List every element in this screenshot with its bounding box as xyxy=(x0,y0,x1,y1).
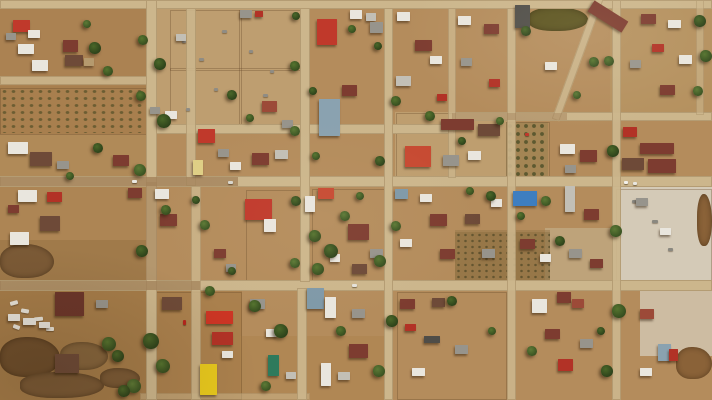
building-roof-maroon xyxy=(430,214,447,226)
building-roof-white xyxy=(264,219,276,232)
building-roof-maroon xyxy=(557,292,571,303)
debris xyxy=(652,220,658,223)
building-roof-white xyxy=(39,322,50,328)
building-roof-redbrown xyxy=(640,309,654,319)
vehicle xyxy=(132,180,137,183)
building-roof-white xyxy=(660,228,671,235)
tree xyxy=(290,258,300,268)
tree xyxy=(249,300,261,312)
vehicle xyxy=(525,133,529,136)
tree xyxy=(227,90,237,100)
building-roof-ltgray xyxy=(338,372,350,380)
building-roof-red2 xyxy=(489,79,500,87)
building-roof-paleyellow xyxy=(193,160,203,175)
building-roof-maroon xyxy=(660,85,675,95)
building-roof-ltgray xyxy=(396,76,411,86)
building-roof-maroon xyxy=(113,155,129,166)
building-roof-red2 xyxy=(669,349,678,361)
tree xyxy=(156,359,170,373)
building-roof-dkbrown xyxy=(30,152,52,166)
tree xyxy=(391,221,401,231)
tree xyxy=(356,192,364,200)
tree xyxy=(486,191,496,201)
building-roof-white xyxy=(10,232,29,245)
building-roof-white xyxy=(18,44,34,54)
building-roof-ltgray xyxy=(275,150,288,159)
tree xyxy=(93,143,103,153)
vehicle xyxy=(624,181,628,184)
building-roof-maroon xyxy=(214,249,226,258)
building-roof-white xyxy=(532,299,547,313)
building-roof-gray xyxy=(630,60,641,68)
scrub-field xyxy=(455,232,550,286)
road-segment xyxy=(448,8,456,178)
building-roof-dkbrown xyxy=(162,297,182,310)
tree xyxy=(118,385,130,397)
debris xyxy=(199,58,204,61)
tree xyxy=(373,365,385,377)
building-roof-maroon xyxy=(252,153,269,165)
debris xyxy=(214,88,218,91)
building-roof-gray xyxy=(240,10,252,18)
building-roof-white xyxy=(350,10,362,19)
tree xyxy=(458,137,466,145)
fence-line xyxy=(0,88,149,135)
building-roof-dkbrown xyxy=(65,55,83,66)
building-roof-white xyxy=(325,297,336,318)
building-roof-white xyxy=(540,254,551,262)
building-roof-white xyxy=(155,189,169,199)
building-roof-ltgray xyxy=(176,34,186,41)
building-roof-white xyxy=(305,196,315,212)
tree xyxy=(274,324,288,338)
tree xyxy=(612,304,626,318)
road-segment xyxy=(384,8,393,400)
fence-line xyxy=(616,189,712,289)
water-patch xyxy=(0,337,60,377)
building-roof-gray xyxy=(96,300,108,308)
building-roof-gray xyxy=(455,345,468,354)
building-roof-white xyxy=(28,30,40,38)
building-roof-white xyxy=(420,194,432,202)
water-patch xyxy=(20,372,104,398)
building-roof-maroon xyxy=(342,85,357,96)
tree xyxy=(694,15,706,27)
building-roof-white xyxy=(400,239,412,247)
building-roof-white xyxy=(458,16,471,25)
building-roof-dkgray xyxy=(424,336,440,343)
building-roof-gray xyxy=(370,22,383,33)
tree xyxy=(154,58,166,70)
building-roof-maroon xyxy=(484,24,499,34)
tree xyxy=(610,225,622,237)
tree xyxy=(374,255,386,267)
building-roof-dkbrown xyxy=(478,124,500,136)
vehicle xyxy=(183,320,186,325)
building-roof-maroon xyxy=(8,205,19,213)
building-roof-gray xyxy=(461,58,472,66)
tree xyxy=(157,114,171,128)
building-roof-ltgray xyxy=(565,186,575,212)
building-roof-gray xyxy=(565,165,576,173)
tree xyxy=(66,172,74,180)
building-roof-maroon xyxy=(400,299,415,309)
tree xyxy=(112,350,124,362)
building-roof-dkbrown xyxy=(40,216,60,231)
tree xyxy=(604,56,614,66)
building-roof-bluegray2 xyxy=(307,288,324,309)
debris xyxy=(263,94,268,97)
building-roof-white xyxy=(412,368,425,376)
building-roof-maroon xyxy=(545,329,560,339)
tree xyxy=(541,196,551,206)
tree xyxy=(521,26,531,36)
tree xyxy=(693,86,703,96)
building-roof-red2 xyxy=(652,44,664,52)
tree xyxy=(555,236,565,246)
building-roof-gray xyxy=(352,309,365,318)
tree xyxy=(309,87,317,95)
building-roof-redbrown xyxy=(572,299,584,308)
tree xyxy=(340,211,350,221)
building-roof-gray xyxy=(150,107,160,114)
tree xyxy=(136,91,146,101)
building-roof-red2 xyxy=(623,127,637,137)
tree xyxy=(386,315,398,327)
tree xyxy=(425,111,435,121)
building-roof-gray xyxy=(443,155,459,166)
tree xyxy=(517,212,525,220)
building-roof-red2 xyxy=(212,332,233,345)
building-roof-tan xyxy=(84,58,94,66)
building-roof-dkgray xyxy=(515,5,530,28)
building-roof-redorange xyxy=(318,188,334,199)
building-roof-maroon xyxy=(590,259,603,268)
tree xyxy=(228,267,236,275)
tree xyxy=(205,286,215,296)
building-roof-maroon xyxy=(648,159,676,173)
aerial-town-photo xyxy=(0,0,712,400)
road-segment xyxy=(297,288,307,400)
tree xyxy=(290,61,300,71)
water-patch xyxy=(528,7,588,31)
building-roof-white xyxy=(23,318,36,325)
building-roof-dkbrown xyxy=(622,158,644,170)
building-roof-dkbrown xyxy=(55,354,79,373)
building-roof-maroon xyxy=(580,150,597,162)
tree xyxy=(83,20,91,28)
building-roof-dkbrown xyxy=(432,298,445,307)
building-roof-white xyxy=(679,55,692,64)
debris xyxy=(222,30,227,33)
ground-zone xyxy=(640,288,712,356)
tree xyxy=(607,145,619,157)
tree xyxy=(161,205,171,215)
tree xyxy=(89,42,101,54)
tree xyxy=(102,337,116,351)
building-roof-gray xyxy=(57,161,69,169)
tree xyxy=(192,196,200,204)
tree xyxy=(573,91,581,99)
building-roof-gray xyxy=(636,198,648,206)
building-roof-maroon xyxy=(440,249,455,259)
water-patch xyxy=(676,347,712,379)
building-roof-maroon xyxy=(640,143,674,154)
tree xyxy=(374,42,382,50)
road-segment xyxy=(300,8,310,282)
building-roof-maroon xyxy=(584,209,599,220)
building-roof-white xyxy=(32,60,48,71)
building-roof-white xyxy=(18,190,37,202)
building-roof-brightred xyxy=(206,311,233,324)
building-roof-maroon xyxy=(415,40,432,51)
debris xyxy=(668,248,673,251)
building-roof-maroon xyxy=(128,188,142,198)
road-wet-segment xyxy=(0,281,200,290)
vehicle xyxy=(228,181,233,184)
vehicle xyxy=(352,284,357,287)
road-wet-segment xyxy=(0,177,238,186)
building-roof-white xyxy=(668,20,681,28)
tree xyxy=(138,35,148,45)
building-roof-white xyxy=(430,56,442,64)
tree xyxy=(134,164,146,176)
building-roof-redorange xyxy=(405,146,431,167)
building-roof-bluegray xyxy=(319,99,340,136)
building-roof-maroon xyxy=(349,344,368,358)
building-roof-gray xyxy=(482,249,495,258)
debris xyxy=(270,70,274,73)
building-roof-maroon xyxy=(520,239,535,249)
building-roof-gray xyxy=(6,33,16,40)
building-roof-dkmaroon xyxy=(55,292,84,316)
tree xyxy=(597,327,605,335)
tree xyxy=(348,25,356,33)
building-roof-ltgray xyxy=(286,372,296,379)
debris xyxy=(186,108,190,111)
building-roof-maroon xyxy=(441,119,474,130)
building-roof-bluegray2 xyxy=(395,189,408,199)
building-roof-red2 xyxy=(558,359,573,371)
tree xyxy=(336,326,346,336)
tree xyxy=(466,187,474,195)
building-roof-red2 xyxy=(437,94,447,101)
tree xyxy=(290,126,300,136)
tree xyxy=(375,156,385,166)
building-roof-blue xyxy=(513,191,537,206)
tree xyxy=(246,114,254,122)
tree xyxy=(103,66,113,76)
building-roof-red2 xyxy=(405,324,416,331)
building-roof-teal xyxy=(268,355,279,376)
building-roof-white xyxy=(397,12,410,21)
tree xyxy=(700,50,712,62)
tree xyxy=(527,346,537,356)
tree xyxy=(312,263,324,275)
building-roof-dkbrown xyxy=(465,214,480,224)
building-roof-gray xyxy=(218,149,229,157)
building-roof-ltgray xyxy=(366,13,376,21)
building-roof-maroon xyxy=(63,40,78,52)
building-roof-white xyxy=(321,363,331,386)
tree xyxy=(292,12,300,20)
tree xyxy=(447,296,457,306)
tree xyxy=(200,220,210,230)
tree xyxy=(488,327,496,335)
building-roof-red2 xyxy=(47,192,62,202)
building-roof-red xyxy=(198,129,215,143)
road-segment xyxy=(0,76,152,85)
building-roof-maroon xyxy=(348,224,369,240)
building-roof-white xyxy=(8,314,20,321)
building-roof-maroon xyxy=(160,214,177,226)
vehicle xyxy=(633,182,637,185)
tree xyxy=(496,117,504,125)
building-roof-red xyxy=(317,19,337,45)
tree xyxy=(309,230,321,242)
building-roof-white xyxy=(560,144,575,154)
building-roof-yellow xyxy=(200,364,217,395)
building-roof-white xyxy=(468,151,481,160)
tree xyxy=(324,244,338,258)
building-roof-maroon xyxy=(641,14,656,24)
building-roof-white xyxy=(222,351,233,358)
building-roof-dkbrown xyxy=(352,264,367,274)
road-segment xyxy=(140,393,310,400)
building-roof-redbrown xyxy=(262,101,277,112)
building-roof-white xyxy=(8,142,28,154)
building-roof-red2 xyxy=(255,11,263,17)
tree xyxy=(589,57,599,67)
tree xyxy=(391,96,401,106)
tree xyxy=(291,196,301,206)
water-patch xyxy=(0,244,54,278)
building-roof-gray xyxy=(569,249,582,258)
tree xyxy=(136,245,148,257)
building-roof-white xyxy=(545,62,557,70)
tree xyxy=(261,381,271,391)
tree xyxy=(601,365,613,377)
building-roof-white xyxy=(230,162,241,170)
tree xyxy=(312,152,320,160)
tree xyxy=(143,333,159,349)
building-roof-red xyxy=(245,199,272,220)
debris xyxy=(249,50,253,53)
building-roof-white xyxy=(640,368,652,376)
building-roof-gray xyxy=(580,339,593,348)
